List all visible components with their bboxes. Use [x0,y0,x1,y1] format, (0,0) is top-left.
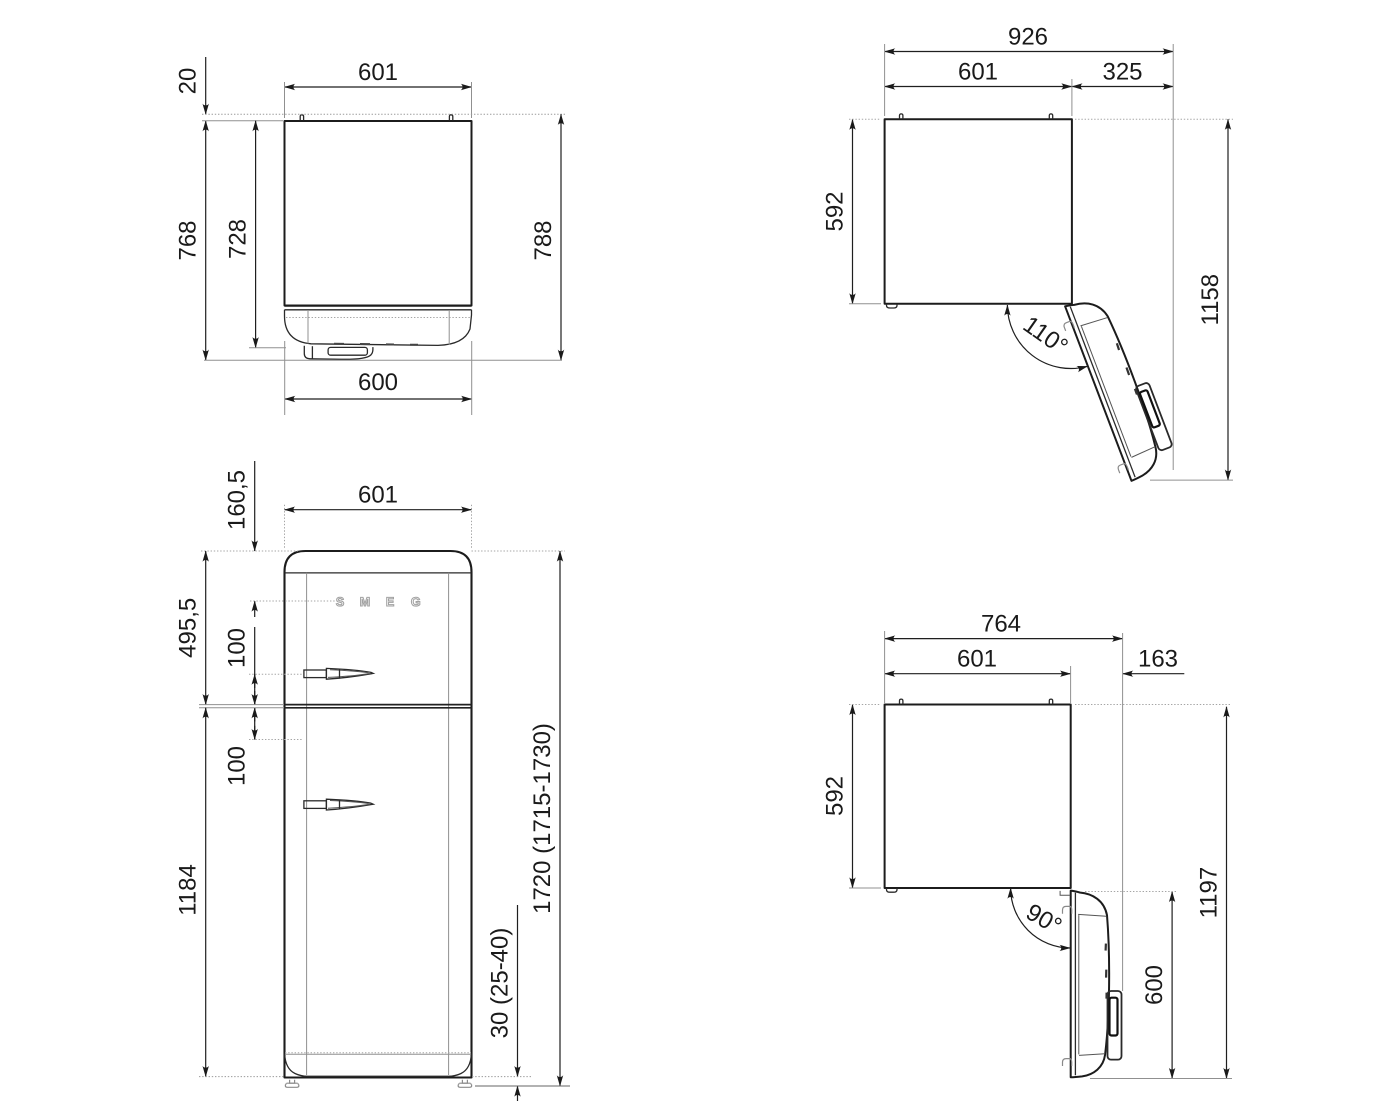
svg-text:163: 163 [1138,646,1178,673]
svg-text:728: 728 [225,219,252,259]
svg-text:20: 20 [175,68,202,95]
svg-text:325: 325 [1102,59,1142,86]
svg-text:S: S [336,595,344,609]
svg-text:601: 601 [358,482,398,509]
svg-text:788: 788 [530,220,557,260]
svg-text:764: 764 [981,611,1021,638]
svg-text:G: G [411,595,421,609]
svg-text:30 (25-40): 30 (25-40) [487,928,514,1039]
svg-text:1158: 1158 [1197,274,1224,326]
svg-text:601: 601 [958,59,998,86]
svg-text:600: 600 [358,369,398,396]
svg-text:601: 601 [358,59,398,86]
svg-text:926: 926 [1008,24,1048,51]
svg-text:768: 768 [175,220,202,260]
svg-text:600: 600 [1141,965,1168,1005]
svg-text:M: M [360,595,370,609]
svg-text:110°: 110° [1018,311,1073,361]
svg-text:495,5: 495,5 [175,598,202,658]
svg-text:1184: 1184 [175,864,202,916]
svg-text:601: 601 [957,646,997,673]
svg-text:592: 592 [822,776,849,816]
svg-text:160,5: 160,5 [224,470,251,530]
svg-text:E: E [386,595,394,609]
svg-text:1720 (1715-1730): 1720 (1715-1730) [529,723,556,914]
svg-text:90°: 90° [1021,899,1066,941]
svg-text:100: 100 [224,628,251,668]
svg-text:1197: 1197 [1196,867,1223,919]
svg-text:592: 592 [822,191,849,231]
svg-text:100: 100 [224,746,251,786]
